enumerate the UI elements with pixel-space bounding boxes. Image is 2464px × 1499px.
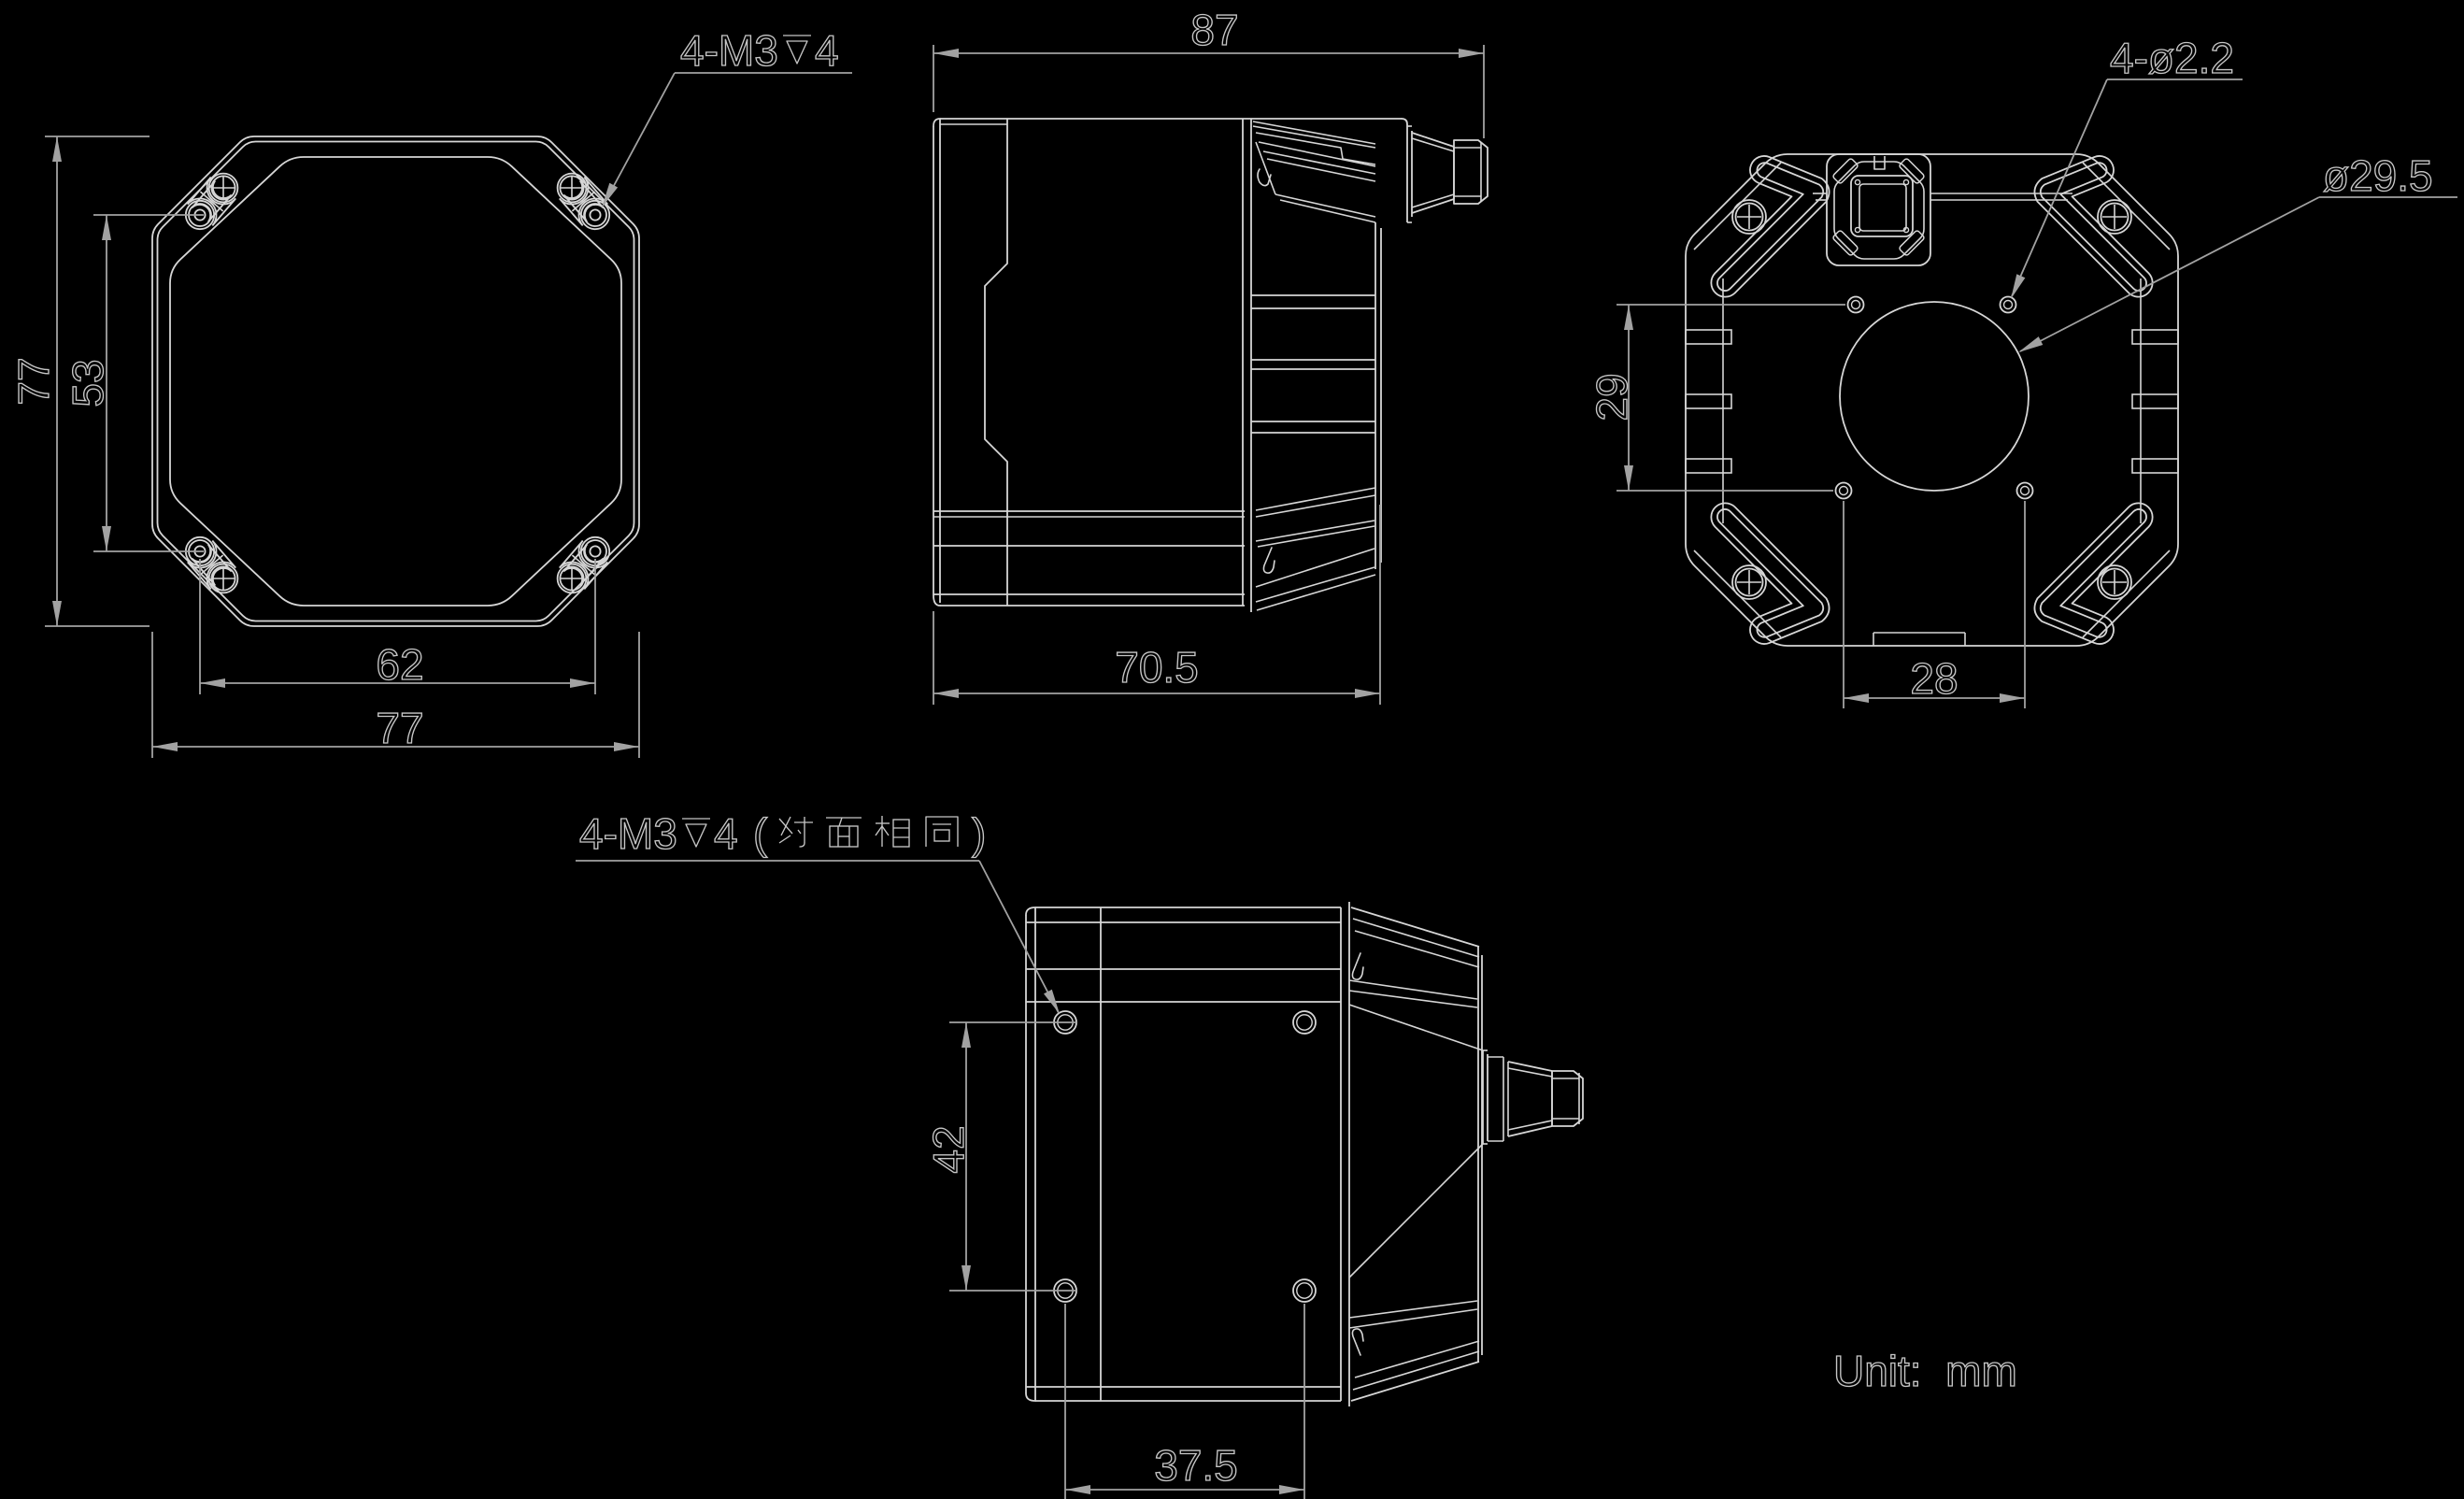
svg-text:37.5: 37.5 <box>1154 1441 1238 1490</box>
svg-text:Unit: mm: Unit: mm <box>1833 1347 2017 1395</box>
svg-text:28: 28 <box>1910 654 1958 703</box>
svg-text:4-M3: 4-M3 <box>680 26 778 75</box>
svg-text:4-ø2.2: 4-ø2.2 <box>2110 34 2234 82</box>
svg-text:29: 29 <box>1588 373 1636 421</box>
svg-text:ø29.5: ø29.5 <box>2323 151 2433 200</box>
svg-text:87: 87 <box>1190 6 1238 54</box>
svg-text:77: 77 <box>9 357 58 405</box>
svg-text:4: 4 <box>815 26 839 75</box>
svg-text:): ) <box>972 809 986 858</box>
svg-text:53: 53 <box>64 359 112 407</box>
svg-text:77: 77 <box>376 704 423 752</box>
svg-text:4: 4 <box>714 809 738 858</box>
svg-text:62: 62 <box>376 640 423 689</box>
svg-text:42: 42 <box>924 1125 973 1173</box>
svg-text:(: ( <box>753 809 768 858</box>
svg-text:4-M3: 4-M3 <box>579 809 677 858</box>
svg-text:70.5: 70.5 <box>1115 643 1199 692</box>
